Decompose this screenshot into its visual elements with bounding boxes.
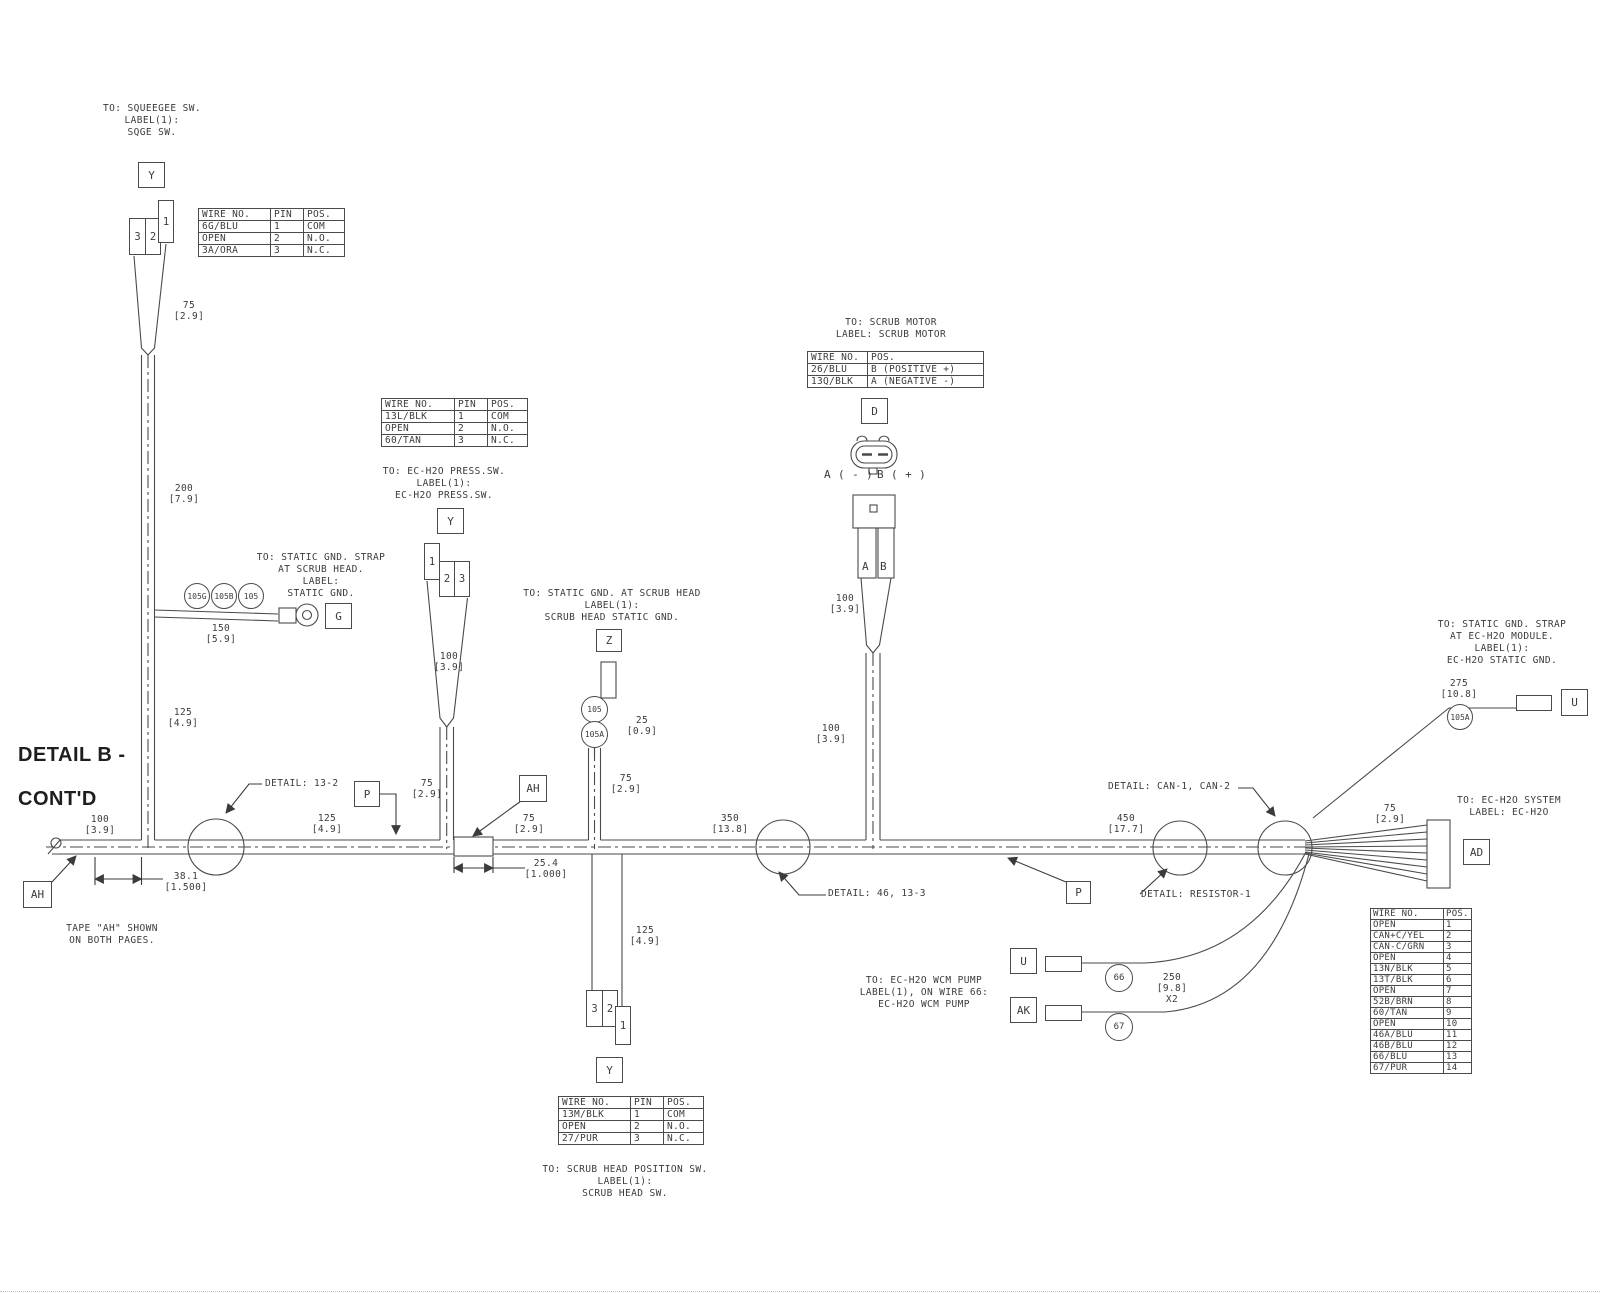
callout-ech2o-press-sw: TO: EC-H2O PRESS.SW. LABEL(1): EC-H2O PR… <box>383 466 505 502</box>
table-cell: 2 <box>455 423 488 435</box>
table-cell: 1 <box>1444 920 1472 931</box>
table-cell: 3A/ORA <box>199 245 271 257</box>
table-cell: 3 <box>271 245 304 257</box>
table-header-cell: WIRE NO. <box>808 352 868 364</box>
ech2o-system-pinout-table: WIRE NO.POS.OPEN1CAN+C/YEL2CAN-C/GRN3OPE… <box>1370 908 1472 1074</box>
dim-75-press-branch: 75[2.9] <box>412 778 443 800</box>
table-cell: OPEN <box>1371 1019 1444 1030</box>
ref-box-z: Z <box>596 629 622 652</box>
table-row: 67/PUR14 <box>1371 1063 1472 1074</box>
dim-bracket: [3.9] <box>816 734 847 745</box>
pin-number: 2 <box>444 573 450 585</box>
table-cell: N.C. <box>664 1133 704 1145</box>
table-cell: OPEN <box>1371 953 1444 964</box>
table-row: OPEN1 <box>1371 920 1472 931</box>
callout-scrub-head-static-gnd: TO: STATIC GND. AT SCRUB HEAD LABEL(1): … <box>523 588 700 624</box>
motor-leg-a-label: A <box>862 560 869 574</box>
dim-value: 125 <box>168 707 199 718</box>
dim-100-press: 100[3.9] <box>434 651 465 673</box>
table-cell: OPEN <box>382 423 455 435</box>
ref-letter: D <box>871 405 878 418</box>
press-sw-pinout-table: WIRE NO.PINPOS.13L/BLK1COMOPEN2N.O.60/TA… <box>381 398 528 447</box>
dim-value: 350 <box>712 813 749 824</box>
table-cell: 1 <box>271 221 304 233</box>
dim-value: 100 <box>85 814 116 825</box>
table-cell: 52B/BRN <box>1371 997 1444 1008</box>
dim-value: 25.4 <box>525 858 568 869</box>
dim-bracket: [10.8] <box>1441 689 1478 700</box>
callout-line: TO: STATIC GND. STRAP <box>257 552 386 564</box>
dim-bracket: [3.9] <box>85 825 116 836</box>
dim-bracket: [7.9] <box>169 494 200 505</box>
table-row: 13L/BLK1COM <box>382 411 528 423</box>
dimension-lines <box>95 857 525 885</box>
dim-bracket: [3.9] <box>434 662 465 673</box>
table-cell: 2 <box>1444 931 1472 942</box>
dim-bracket: [4.9] <box>312 824 343 835</box>
dim-value: 38.1 <box>165 871 208 882</box>
table-row: 46B/BLU12 <box>1371 1041 1472 1052</box>
table-row: WIRE NO.PINPOS. <box>382 399 528 411</box>
callout-ech2o-wcm-pump: TO: EC-H2O WCM PUMP LABEL(1), ON WIRE 66… <box>860 975 989 1011</box>
table-row: 66/BLU13 <box>1371 1052 1472 1063</box>
note-line: TAPE "AH" SHOWN <box>66 923 158 935</box>
dim-450: 450[17.7] <box>1108 813 1145 835</box>
table-cell: 5 <box>1444 964 1472 975</box>
ref-letter: U <box>1020 955 1027 968</box>
ref-letter: Y <box>447 515 454 528</box>
table-row: 60/TAN3N.C. <box>382 435 528 447</box>
table-cell: COM <box>488 411 528 423</box>
dim-75-z-tube: 75[2.9] <box>611 773 642 795</box>
table-cell: 2 <box>631 1121 664 1133</box>
callout-line: TO: EC-H2O SYSTEM <box>1457 795 1561 807</box>
ref-letter: AD <box>1470 846 1483 859</box>
ref-letter: P <box>1075 886 1082 899</box>
callout-line: LABEL(1): <box>542 1176 707 1188</box>
ref-box-ah-left: AH <box>23 881 52 908</box>
table-cell: 66/BLU <box>1371 1052 1444 1063</box>
ref-box-p-right: P <box>1066 881 1091 904</box>
table-cell: 13N/BLK <box>1371 964 1444 975</box>
dim-bracket: [13.8] <box>712 824 749 835</box>
table-cell: 60/TAN <box>382 435 455 447</box>
dim-bracket: [2.9] <box>412 789 443 800</box>
main-harness-tube <box>46 838 1311 854</box>
tape-ah-note: TAPE "AH" SHOWN ON BOTH PAGES. <box>66 923 158 947</box>
press-sw-pin-3: 3 <box>454 561 470 597</box>
callout-line: LABEL: EC-H2O <box>1457 807 1561 819</box>
dim-125-harness: 125[4.9] <box>312 813 343 835</box>
dim-100-motor-upper: 100[3.9] <box>830 593 861 615</box>
dim-150: 150[5.9] <box>206 623 237 645</box>
detail-resistor-label: DETAIL: RESISTOR-1 <box>1141 889 1251 901</box>
note-line: ON BOTH PAGES. <box>66 935 158 947</box>
dim-value: 75 <box>514 813 545 824</box>
dim-value: 125 <box>630 925 661 936</box>
dim-bracket: [3.9] <box>830 604 861 615</box>
callout-line: LABEL(1): <box>383 478 505 490</box>
dim-275: 275[10.8] <box>1441 678 1478 700</box>
ref-box-ah-tape: AH <box>519 775 547 802</box>
table-header-cell: PIN <box>271 209 304 221</box>
splice-105: 105 <box>238 583 264 609</box>
dim-value: 75 <box>611 773 642 784</box>
dim-100-motor-lower: 100[3.9] <box>816 723 847 745</box>
dim-value: 275 <box>1441 678 1478 689</box>
table-row: 13Q/BLKA (NEGATIVE -) <box>808 376 984 388</box>
table-cell: 12 <box>1444 1041 1472 1052</box>
callout-line: TO: STATIC GND. AT SCRUB HEAD <box>523 588 700 600</box>
pin-number: 1 <box>620 1020 626 1032</box>
dim-200: 200[7.9] <box>169 483 200 505</box>
dim-125-position-sw: 125[4.9] <box>630 925 661 947</box>
dim-bracket: [4.9] <box>168 718 199 729</box>
table-header-cell: WIRE NO. <box>199 209 271 221</box>
callout-line: STATIC GND. <box>257 588 386 600</box>
ref-letter: Y <box>606 1064 613 1077</box>
detail-can-label: DETAIL: CAN-1, CAN-2 <box>1108 781 1230 793</box>
dim-value: 75 <box>412 778 443 789</box>
dim-25-4: 25.4[1.000] <box>525 858 568 880</box>
ref-box-p-left: P <box>354 781 380 807</box>
squeegee-pin-3: 3 <box>129 218 146 255</box>
splice-105a-z: 105A <box>581 721 608 748</box>
scrub-motor-pinout-table: WIRE NO.POS.26/BLUB (POSITIVE +)13Q/BLKA… <box>807 351 984 388</box>
squeegee-branch-tube <box>134 244 166 849</box>
table-header-cell: POS. <box>488 399 528 411</box>
table-cell: 6G/BLU <box>199 221 271 233</box>
dim-bracket: [9.8] <box>1157 983 1188 994</box>
table-cell: 3 <box>455 435 488 447</box>
table-row: WIRE NO.POS. <box>808 352 984 364</box>
table-cell: 10 <box>1444 1019 1472 1030</box>
splice-105a-module: 105A <box>1447 704 1473 730</box>
pin-number: 1 <box>163 216 169 228</box>
dim-75-squeegee: 75[2.9] <box>174 300 205 322</box>
splice-label: 105A <box>585 730 604 739</box>
table-row: 46A/BLU11 <box>1371 1030 1472 1041</box>
ref-box-d: D <box>861 398 888 424</box>
ref-box-u-module: U <box>1561 689 1588 716</box>
table-header-cell: WIRE NO. <box>1371 909 1444 920</box>
table-row: WIRE NO.POS. <box>1371 909 1472 920</box>
ref-letter: Z <box>606 634 613 647</box>
tape-ah-segment <box>454 837 493 856</box>
dim-value: 75 <box>1375 803 1406 814</box>
table-cell: 46A/BLU <box>1371 1030 1444 1041</box>
splice-label: 105B <box>214 592 233 601</box>
callout-line: LABEL(1): <box>1438 643 1567 655</box>
table-row: WIRE NO.PINPOS. <box>559 1097 704 1109</box>
splice-105-z: 105 <box>581 696 608 723</box>
position-sw-pinout-table: WIRE NO.PINPOS.13M/BLK1COMOPEN2N.O.27/PU… <box>558 1096 704 1145</box>
dim-value: 75 <box>174 300 205 311</box>
table-cell: 1 <box>455 411 488 423</box>
table-header-cell: POS. <box>304 209 345 221</box>
table-header-cell: POS. <box>1444 909 1472 920</box>
callout-line: AT EC-H2O MODULE. <box>1438 631 1567 643</box>
callout-scrub-head-position-sw: TO: SCRUB HEAD POSITION SW. LABEL(1): SC… <box>542 1164 707 1200</box>
table-cell: 8 <box>1444 997 1472 1008</box>
table-cell: 11 <box>1444 1030 1472 1041</box>
ref-letter: Y <box>148 169 155 182</box>
dim-value: 250 <box>1157 972 1188 983</box>
table-cell: N.O. <box>664 1121 704 1133</box>
splice-105g: 105G <box>184 583 210 609</box>
table-row: 27/PUR3N.C. <box>559 1133 704 1145</box>
table-cell: 3 <box>1444 942 1472 953</box>
table-row: 3A/ORA3N.C. <box>199 245 345 257</box>
pump-u-terminal <box>1045 956 1082 972</box>
splice-label: 105 <box>587 705 601 714</box>
table-row: 6G/BLU1COM <box>199 221 345 233</box>
table-cell: 4 <box>1444 953 1472 964</box>
table-cell: N.O. <box>304 233 345 245</box>
table-cell: 9 <box>1444 1008 1472 1019</box>
table-row: OPEN2N.O. <box>382 423 528 435</box>
ref-box-g: G <box>325 603 352 629</box>
ref-letter: G <box>335 610 342 623</box>
table-cell: OPEN <box>559 1121 631 1133</box>
table-cell: 13Q/BLK <box>808 376 868 388</box>
table-row: OPEN7 <box>1371 986 1472 997</box>
squeegee-pin-1: 1 <box>158 200 174 243</box>
callout-line: LABEL(1), ON WIRE 66: <box>860 987 989 999</box>
table-row: 13T/BLK6 <box>1371 975 1472 986</box>
table-row: 26/BLUB (POSITIVE +) <box>808 364 984 376</box>
table-row: 52B/BRN8 <box>1371 997 1472 1008</box>
dim-value: 125 <box>312 813 343 824</box>
table-cell: 46B/BLU <box>1371 1041 1444 1052</box>
callout-line: TO: EC-H2O PRESS.SW. <box>383 466 505 478</box>
harness-geometry <box>0 0 1600 1294</box>
table-header-cell: POS. <box>868 352 984 364</box>
pin-number: 1 <box>429 556 435 568</box>
splice-wire-67: 67 <box>1105 1013 1133 1041</box>
ref-box-u-pump: U <box>1010 948 1037 974</box>
dim-bracket: [17.7] <box>1108 824 1145 835</box>
table-cell: B (POSITIVE +) <box>868 364 984 376</box>
motor-terminal-b-label: B ( + ) <box>877 468 926 482</box>
table-cell: 27/PUR <box>559 1133 631 1145</box>
scrub-motor-connector <box>851 436 897 849</box>
dim-350: 350[13.8] <box>712 813 749 835</box>
table-row: OPEN2N.O. <box>199 233 345 245</box>
callout-line: SQGE SW. <box>103 127 201 139</box>
dim-bracket: [2.9] <box>1375 814 1406 825</box>
table-cell: OPEN <box>1371 986 1444 997</box>
table-cell: 2 <box>271 233 304 245</box>
table-row: OPEN2N.O. <box>559 1121 704 1133</box>
ref-box-ad: AD <box>1463 839 1490 865</box>
table-cell: 1 <box>631 1109 664 1121</box>
callout-line: LABEL(1): <box>523 600 700 612</box>
press-sw-pin-1: 1 <box>424 543 440 580</box>
ref-letter: AK <box>1017 1004 1030 1017</box>
table-cell: COM <box>664 1109 704 1121</box>
press-sw-branch-tube <box>427 581 468 849</box>
dim-bracket: [4.9] <box>630 936 661 947</box>
press-sw-pin-2: 2 <box>439 561 455 597</box>
callout-line: EC-H2O WCM PUMP <box>860 999 989 1011</box>
callout-line: LABEL: <box>257 576 386 588</box>
dim-25-z: 25[0.9] <box>627 715 658 737</box>
motor-leg-b-label: B <box>880 560 887 574</box>
dim-bracket: [1.500] <box>165 882 208 893</box>
splice-label: 67 <box>1114 1022 1125 1032</box>
table-cell: 13T/BLK <box>1371 975 1444 986</box>
splice-label: 105A <box>1450 713 1469 722</box>
callout-line: TO: SCRUB MOTOR <box>836 317 946 329</box>
dim-bracket: [5.9] <box>206 634 237 645</box>
table-header-cell: WIRE NO. <box>559 1097 631 1109</box>
table-cell: 26/BLU <box>808 364 868 376</box>
table-cell: OPEN <box>199 233 271 245</box>
table-row: OPEN10 <box>1371 1019 1472 1030</box>
page-edge-strip <box>0 1291 1600 1292</box>
dim-value: 200 <box>169 483 200 494</box>
ref-box-y-press: Y <box>437 508 464 534</box>
ref-letter: AH <box>526 782 539 795</box>
table-cell: A (NEGATIVE -) <box>868 376 984 388</box>
table-header-cell: POS. <box>664 1097 704 1109</box>
dim-100-harness-left: 100[3.9] <box>85 814 116 836</box>
table-row: CAN-C/GRN3 <box>1371 942 1472 953</box>
ref-box-y-position: Y <box>596 1057 623 1083</box>
splice-label: 105 <box>244 592 258 601</box>
table-cell: CAN-C/GRN <box>1371 942 1444 953</box>
motor-terminal-a-label: A ( - ) <box>824 468 873 482</box>
table-cell: 6 <box>1444 975 1472 986</box>
pin-number: 2 <box>607 1003 613 1015</box>
callout-line: TO: SQUEEGEE SW. <box>103 103 201 115</box>
callout-line: SCRUB HEAD STATIC GND. <box>523 612 700 624</box>
dim-bracket: [2.9] <box>514 824 545 835</box>
callout-line: EC-H2O STATIC GND. <box>1438 655 1567 667</box>
dim-value: 100 <box>830 593 861 604</box>
pump-ak-terminal <box>1045 1005 1082 1021</box>
table-header-cell: PIN <box>631 1097 664 1109</box>
squeegee-pinout-table: WIRE NO.PINPOS.6G/BLU1COMOPEN2N.O.3A/ORA… <box>198 208 345 257</box>
callout-line: TO: EC-H2O WCM PUMP <box>860 975 989 987</box>
callout-line: TO: STATIC GND. STRAP <box>1438 619 1567 631</box>
callout-line: SCRUB HEAD SW. <box>542 1188 707 1200</box>
table-cell: COM <box>304 221 345 233</box>
callout-line: TO: SCRUB HEAD POSITION SW. <box>542 1164 707 1176</box>
detail-b-title: DETAIL B - <box>18 744 126 766</box>
table-header-cell: PIN <box>455 399 488 411</box>
table-row: 13M/BLK1COM <box>559 1109 704 1121</box>
table-cell: 13M/BLK <box>559 1109 631 1121</box>
callout-line: LABEL(1): <box>103 115 201 127</box>
detail-46-13-3-label: DETAIL: 46, 13-3 <box>828 888 926 900</box>
table-cell: N.C. <box>304 245 345 257</box>
table-cell: 3 <box>631 1133 664 1145</box>
dim-bracket: [2.9] <box>611 784 642 795</box>
position-sw-pin-1: 1 <box>615 1006 631 1045</box>
dim-75-fanout: 75[2.9] <box>1375 803 1406 825</box>
ref-letter: P <box>364 788 371 801</box>
dim-value: 100 <box>434 651 465 662</box>
table-cell: N.C. <box>488 435 528 447</box>
pin-number: 3 <box>459 573 465 585</box>
detail-13-2-label: DETAIL: 13-2 <box>265 778 338 790</box>
pin-number: 3 <box>134 231 140 243</box>
table-cell: 14 <box>1444 1063 1472 1074</box>
table-cell: OPEN <box>1371 920 1444 931</box>
table-cell: 13L/BLK <box>382 411 455 423</box>
table-row: OPEN4 <box>1371 953 1472 964</box>
dim-multiplier: X2 <box>1157 994 1188 1005</box>
splice-wire-66: 66 <box>1105 964 1133 992</box>
callout-ech2o-system: TO: EC-H2O SYSTEM LABEL: EC-H2O <box>1457 795 1561 819</box>
table-cell: 7 <box>1444 986 1472 997</box>
callout-ech2o-static-gnd: TO: STATIC GND. STRAP AT EC-H2O MODULE. … <box>1438 619 1567 667</box>
dim-value: 100 <box>816 723 847 734</box>
detail-b-contd: CONT'D <box>18 788 97 810</box>
dim-125-squeegee: 125[4.9] <box>168 707 199 729</box>
table-cell: CAN+C/YEL <box>1371 931 1444 942</box>
ref-box-y-squeegee: Y <box>138 162 165 188</box>
table-cell: 60/TAN <box>1371 1008 1444 1019</box>
callout-line: LABEL: SCRUB MOTOR <box>836 329 946 341</box>
position-sw-drop-wires <box>592 854 622 1008</box>
scrub-head-static-branch <box>589 662 617 849</box>
dim-bracket: [2.9] <box>174 311 205 322</box>
dim-value: 25 <box>627 715 658 726</box>
ref-box-ak: AK <box>1010 997 1037 1023</box>
splice-label: 66 <box>1114 973 1125 983</box>
splice-label: 105G <box>187 592 206 601</box>
dim-250-x2: 250[9.8]X2 <box>1157 972 1188 1005</box>
ref-letter: U <box>1571 696 1578 709</box>
pin-number: 3 <box>591 1003 597 1015</box>
pin-number: 2 <box>150 231 156 243</box>
callout-scrub-motor: TO: SCRUB MOTOR LABEL: SCRUB MOTOR <box>836 317 946 341</box>
position-sw-pin-3: 3 <box>586 990 603 1027</box>
callout-static-gnd-scrub-head: TO: STATIC GND. STRAP AT SCRUB HEAD. LAB… <box>257 552 386 600</box>
table-row: 60/TAN9 <box>1371 1008 1472 1019</box>
module-static-gnd-terminal <box>1516 695 1552 711</box>
table-row: WIRE NO.PINPOS. <box>199 209 345 221</box>
dim-38-1: 38.1[1.500] <box>165 871 208 893</box>
dim-value: 150 <box>206 623 237 634</box>
dim-bracket: [1.000] <box>525 869 568 880</box>
ref-letter: AH <box>31 888 44 901</box>
table-cell: N.O. <box>488 423 528 435</box>
table-row: CAN+C/YEL2 <box>1371 931 1472 942</box>
callout-line: EC-H2O PRESS.SW. <box>383 490 505 502</box>
dim-value: 450 <box>1108 813 1145 824</box>
callout-line: AT SCRUB HEAD. <box>257 564 386 576</box>
table-header-cell: WIRE NO. <box>382 399 455 411</box>
dim-bracket: [0.9] <box>627 726 658 737</box>
wiring-diagram-page: { "drawing": { "title_line1": "DETAIL B … <box>0 0 1600 1294</box>
table-row: 13N/BLK5 <box>1371 964 1472 975</box>
table-cell: 13 <box>1444 1052 1472 1063</box>
dim-75-after-tape: 75[2.9] <box>514 813 545 835</box>
table-cell: 67/PUR <box>1371 1063 1444 1074</box>
callout-squeegee-sw: TO: SQUEEGEE SW. LABEL(1): SQGE SW. <box>103 103 201 139</box>
splice-105b: 105B <box>211 583 237 609</box>
